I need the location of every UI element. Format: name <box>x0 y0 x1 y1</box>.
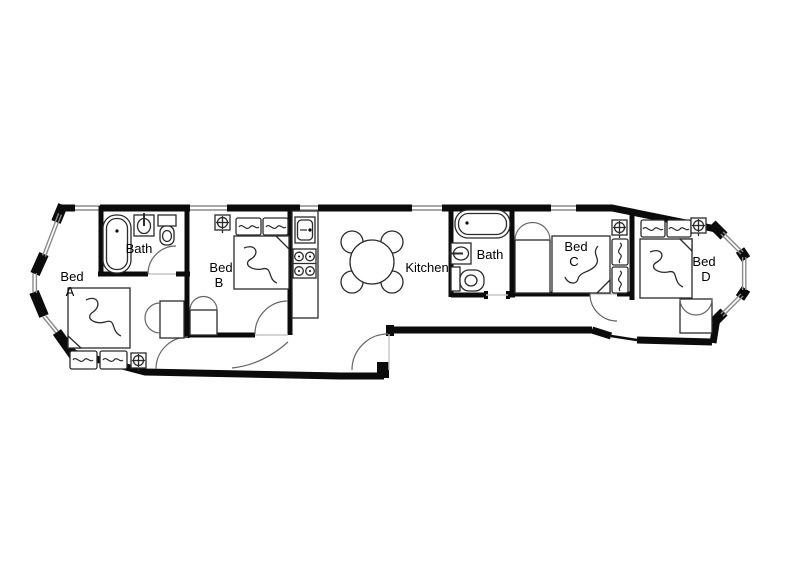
bed-c-label-line1: Bed <box>564 239 587 254</box>
corridor-door-arc <box>232 342 288 368</box>
floor-plan-drawing: Bed A Bath Bed B Kitchen Bath Bed C Bed … <box>0 0 800 566</box>
bed-a-door-arc <box>156 337 188 369</box>
bath-1-label: Bath <box>126 241 153 256</box>
ceiling-light-icon <box>215 215 230 233</box>
entrance-door-post <box>377 362 389 378</box>
ceiling-light-icon <box>131 353 146 371</box>
closet <box>515 240 550 293</box>
bath-2-label: Bath <box>477 247 504 262</box>
pillow <box>667 220 691 237</box>
bed-b-label-line2: B <box>215 275 224 290</box>
bed-a-label-line2: A <box>66 284 75 299</box>
closet <box>160 301 184 338</box>
dining-set <box>341 231 403 293</box>
bed-d-label-line1: Bed <box>692 254 715 269</box>
bed-d-label-line2: D <box>701 269 710 284</box>
wardrobe <box>680 299 712 333</box>
ceiling-light-icon <box>612 220 627 238</box>
kitchen-sink <box>295 217 315 243</box>
double-bed <box>640 239 692 298</box>
ceiling-light-icon <box>691 218 706 236</box>
bed-b-door-arc <box>255 301 288 334</box>
closet <box>190 310 217 335</box>
dining-table <box>350 240 394 284</box>
toilet <box>451 267 484 291</box>
floor-plan-page: Bed A Bath Bed B Kitchen Bath Bed C Bed … <box>0 0 800 566</box>
toilet <box>158 215 176 245</box>
pillow <box>612 267 628 293</box>
stove <box>293 249 316 278</box>
room-bed-a <box>68 288 184 371</box>
kitchen-label: Kitchen <box>405 260 448 275</box>
bed-b-label-line1: Bed <box>209 260 232 275</box>
bed-c-door-arc <box>590 294 617 321</box>
room-kitchen <box>292 211 403 318</box>
bed-a-label-line1: Bed <box>60 269 83 284</box>
room-bed-b <box>190 215 289 335</box>
bed-c-label-line2: C <box>569 254 578 269</box>
rear-door-leaf <box>611 336 637 340</box>
double-bed <box>234 236 289 289</box>
pillow <box>612 239 628 265</box>
bay-window-right <box>721 232 746 316</box>
double-bed <box>68 288 130 348</box>
pillow <box>641 220 665 237</box>
